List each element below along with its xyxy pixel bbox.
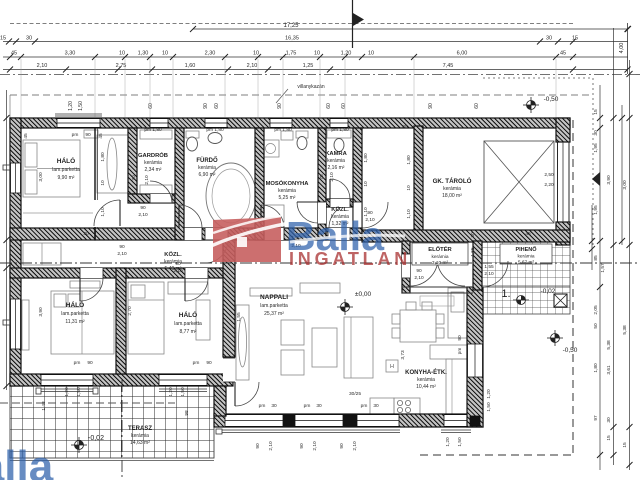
svg-text:lam.parketta: lam.parketta [61, 311, 89, 317]
svg-text:5,67 m²: 5,67 m² [518, 260, 535, 266]
svg-text:pm 1,80: pm 1,80 [144, 127, 162, 133]
svg-text:KÖZL.: KÖZL. [331, 206, 349, 213]
svg-text:2,50: 2,50 [544, 172, 554, 178]
svg-text:1,80: 1,80 [363, 153, 369, 163]
svg-text:30: 30 [470, 232, 476, 238]
svg-text:kerámia: kerámia [131, 433, 149, 439]
svg-text:45: 45 [525, 231, 531, 237]
svg-text:-0,02: -0,02 [88, 435, 104, 442]
svg-text:-0,50: -0,50 [563, 347, 578, 354]
svg-text:MOSÓKONYHA: MOSÓKONYHA [266, 179, 310, 187]
svg-text:kerámia: kerámia [144, 160, 162, 166]
svg-text:1,55: 1,55 [470, 247, 476, 257]
svg-text:3,73: 3,73 [400, 350, 406, 360]
svg-text:pm: pm [74, 361, 81, 366]
svg-text:1,57: 1,57 [600, 263, 606, 273]
svg-text:5,38: 5,38 [622, 325, 628, 335]
svg-text:3,30: 3,30 [65, 51, 76, 57]
svg-text:10: 10 [314, 51, 320, 57]
svg-text:pm: pm [193, 361, 200, 366]
svg-text:2,10: 2,10 [414, 275, 424, 281]
svg-text:kerámia: kerámia [417, 377, 435, 383]
svg-text:NAPPALI: NAPPALI [260, 294, 288, 301]
svg-text:30: 30 [606, 417, 612, 423]
svg-text:3,61: 3,61 [606, 365, 612, 375]
svg-text:1,50: 1,50 [180, 387, 186, 397]
svg-text:60: 60 [148, 103, 154, 109]
svg-text:H: H [390, 364, 394, 370]
svg-text:1,95: 1,95 [593, 205, 599, 215]
svg-text:90: 90 [175, 261, 181, 267]
svg-text:2,10: 2,10 [352, 441, 358, 451]
svg-text:10: 10 [253, 51, 259, 57]
svg-text:pm: pm [259, 404, 266, 409]
svg-text:6,00: 6,00 [457, 51, 468, 57]
svg-text:±0,00: ±0,00 [355, 291, 372, 298]
svg-text:15: 15 [593, 109, 599, 115]
svg-text:1,20: 1,20 [486, 389, 492, 399]
svg-text:1,80: 1,80 [100, 152, 106, 162]
svg-text:1,50: 1,50 [457, 437, 463, 447]
svg-text:75: 75 [319, 174, 325, 180]
svg-text:10: 10 [162, 51, 168, 57]
svg-text:HÁLÓ: HÁLÓ [179, 310, 197, 319]
svg-text:2,10: 2,10 [484, 271, 494, 277]
svg-text:30: 30 [593, 130, 599, 136]
svg-text:97: 97 [593, 415, 599, 421]
svg-text:3,90: 3,90 [38, 307, 44, 317]
svg-text:15: 15 [606, 435, 612, 441]
svg-text:1,50: 1,50 [76, 387, 82, 397]
svg-text:90: 90 [206, 360, 212, 366]
svg-text:2,70: 2,70 [127, 306, 133, 316]
svg-text:pm: pm [361, 404, 368, 409]
svg-text:1,95: 1,95 [593, 143, 599, 153]
svg-text:45: 45 [402, 124, 408, 130]
svg-text:GK. TÁROLÓ: GK. TÁROLÓ [433, 177, 472, 185]
svg-text:10: 10 [368, 51, 374, 57]
svg-text:3,00: 3,00 [38, 172, 44, 182]
svg-text:FÜRDŐ: FÜRDŐ [196, 157, 218, 164]
svg-text:1,75: 1,75 [286, 51, 297, 57]
svg-text:1,10: 1,10 [406, 209, 412, 219]
svg-text:pm: pm [304, 404, 311, 409]
svg-text:90: 90 [339, 443, 345, 449]
svg-text:16,35: 16,35 [285, 36, 299, 42]
svg-text:2,05: 2,05 [593, 305, 599, 315]
svg-text:GARDRÓB: GARDRÓB [138, 151, 168, 159]
svg-text:2,10: 2,10 [138, 212, 148, 218]
svg-text:50: 50 [593, 323, 599, 329]
svg-text:90: 90 [203, 103, 209, 109]
svg-text:90: 90 [428, 103, 434, 109]
svg-text:30: 30 [546, 36, 552, 42]
svg-text:90: 90 [87, 360, 93, 366]
svg-text:60: 60 [341, 103, 347, 109]
svg-text:45: 45 [23, 133, 29, 139]
svg-text:10: 10 [406, 185, 412, 191]
svg-text:4,00: 4,00 [619, 43, 625, 54]
svg-text:5,25 m²: 5,25 m² [279, 195, 296, 201]
svg-text:60: 60 [326, 103, 332, 109]
svg-text:15: 15 [0, 36, 6, 42]
svg-text:2,16 m²: 2,16 m² [328, 165, 345, 171]
svg-text:90: 90 [119, 244, 125, 250]
svg-text:1,55: 1,55 [484, 264, 494, 270]
svg-text:2,10: 2,10 [173, 268, 183, 274]
svg-text:lam.parketta: lam.parketta [260, 303, 288, 309]
svg-text:1,50: 1,50 [486, 402, 492, 412]
svg-text:90: 90 [140, 205, 146, 211]
svg-text:1,80: 1,80 [406, 155, 412, 165]
svg-text:pm 1,80: pm 1,80 [331, 127, 349, 133]
svg-text:1,20: 1,20 [445, 437, 451, 447]
svg-text:pm 1,80: pm 1,80 [274, 127, 292, 133]
svg-text:lam.parketta: lam.parketta [174, 321, 202, 327]
svg-text:Balla: Balla [0, 442, 54, 480]
svg-text:lam.parketta: lam.parketta [52, 167, 80, 173]
svg-text:2,20: 2,20 [544, 182, 554, 188]
svg-text:INGATLAN: INGATLAN [289, 249, 411, 269]
svg-text:2,10: 2,10 [144, 175, 150, 185]
svg-text:kerámia: kerámia [198, 165, 216, 171]
svg-text:7,45: 7,45 [443, 63, 454, 69]
svg-text:KONYHA-ÉTK.: KONYHA-ÉTK. [405, 368, 447, 376]
svg-text:90: 90 [457, 335, 463, 341]
svg-text:1,80: 1,80 [593, 363, 599, 373]
svg-text:90: 90 [277, 103, 283, 109]
svg-text:1,48: 1,48 [41, 401, 47, 411]
svg-text:2,10: 2,10 [329, 172, 335, 182]
svg-text:KAMRA: KAMRA [325, 151, 347, 157]
svg-text:1,30: 1,30 [138, 51, 149, 57]
svg-text:1,55: 1,55 [236, 312, 242, 322]
svg-text:kerámia: kerámia [431, 254, 448, 260]
svg-text:1,25: 1,25 [303, 63, 314, 69]
svg-text:98: 98 [184, 410, 190, 416]
svg-text:10,44 m²: 10,44 m² [416, 384, 436, 390]
svg-text:15: 15 [572, 36, 578, 42]
svg-text:9,90 m²: 9,90 m² [58, 175, 75, 181]
svg-text:30: 30 [26, 36, 32, 42]
svg-text:villanykazán: villanykazán [297, 84, 324, 90]
svg-text:45: 45 [98, 133, 104, 139]
svg-text:70: 70 [131, 175, 137, 181]
svg-text:-0,50: -0,50 [544, 96, 559, 103]
svg-text:8,77 m²: 8,77 m² [180, 329, 197, 335]
svg-text:2,10: 2,10 [247, 63, 258, 69]
svg-text:5,38: 5,38 [606, 340, 612, 350]
svg-text:1,10: 1,10 [100, 207, 106, 217]
svg-text:2,10: 2,10 [268, 441, 274, 451]
svg-text:30/25: 30/25 [349, 391, 361, 397]
svg-text:ELŐTÉR: ELŐTÉR [428, 245, 452, 253]
svg-text:45: 45 [560, 51, 566, 57]
svg-text:30: 30 [316, 403, 322, 409]
svg-text:90: 90 [85, 132, 91, 138]
svg-text:60: 60 [474, 103, 480, 109]
svg-text:17,25: 17,25 [283, 23, 299, 29]
svg-text:2,10: 2,10 [37, 63, 48, 69]
svg-text:18,00 m²: 18,00 m² [442, 193, 462, 199]
svg-text:2,10: 2,10 [312, 441, 318, 451]
svg-text:14,63 m²: 14,63 m² [130, 440, 150, 446]
svg-text:30: 30 [271, 403, 277, 409]
svg-text:30: 30 [373, 403, 379, 409]
svg-text:15: 15 [622, 442, 628, 448]
svg-text:1,20: 1,20 [168, 387, 174, 397]
svg-text:85: 85 [593, 255, 599, 261]
svg-text:60: 60 [214, 103, 220, 109]
svg-text:pm: pm [72, 133, 79, 138]
svg-text:1.: 1. [501, 288, 510, 300]
svg-text:6,90 m²: 6,90 m² [199, 172, 216, 178]
svg-text:2,75: 2,75 [116, 63, 127, 69]
svg-text:3,00: 3,00 [622, 180, 628, 190]
svg-text:kerámia: kerámia [278, 188, 296, 194]
svg-text:3,90: 3,90 [606, 175, 612, 185]
svg-text:1,50: 1,50 [78, 101, 84, 111]
svg-text:90: 90 [416, 268, 422, 274]
svg-text:pm 1,80: pm 1,80 [206, 127, 224, 133]
svg-text:pm: pm [458, 348, 463, 355]
svg-text:2,30: 2,30 [205, 51, 216, 57]
svg-text:11,31 m²: 11,31 m² [65, 319, 85, 325]
svg-text:30: 30 [83, 231, 89, 237]
svg-text:HÁLÓ: HÁLÓ [57, 156, 75, 165]
svg-text:1,60: 1,60 [185, 63, 196, 69]
svg-text:kerámia: kerámia [443, 186, 461, 192]
svg-text:25,37 m²: 25,37 m² [264, 311, 284, 317]
svg-text:2,10: 2,10 [117, 251, 127, 257]
svg-text:PIHENŐ: PIHENŐ [515, 246, 537, 253]
svg-text:90: 90 [255, 443, 261, 449]
svg-text:10: 10 [363, 181, 369, 187]
svg-text:KÖZL.: KÖZL. [164, 251, 182, 258]
svg-text:10: 10 [100, 180, 106, 186]
svg-text:HÁLÓ: HÁLÓ [66, 300, 84, 309]
svg-text:90: 90 [299, 443, 305, 449]
svg-text:TERASZ: TERASZ [128, 426, 152, 432]
svg-text:10: 10 [119, 51, 125, 57]
svg-text:kerámia: kerámia [517, 254, 534, 260]
svg-text:1,20: 1,20 [64, 387, 70, 397]
svg-text:2,34 m²: 2,34 m² [145, 167, 162, 173]
svg-text:1,20: 1,20 [68, 101, 74, 111]
svg-text:kerámia: kerámia [327, 158, 345, 164]
